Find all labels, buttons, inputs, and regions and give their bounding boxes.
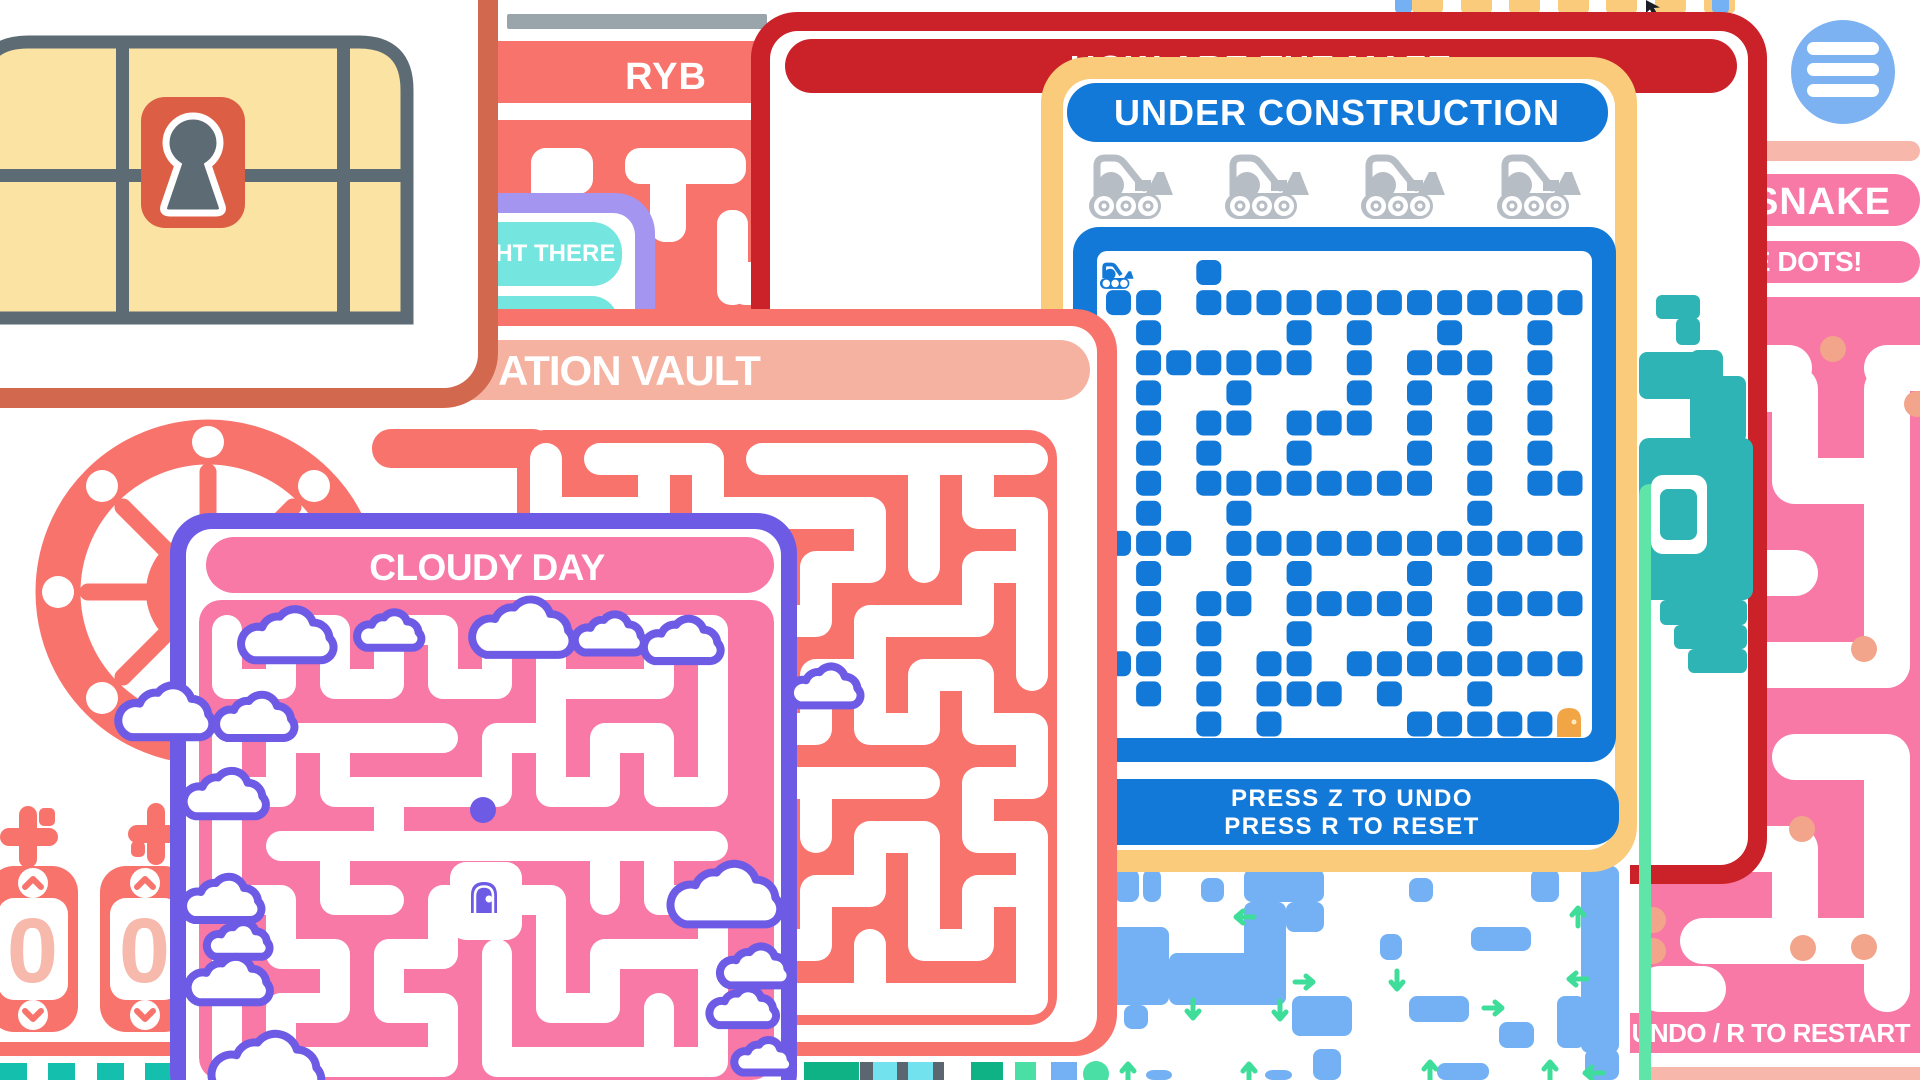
svg-text:ATION VAULT: ATION VAULT bbox=[498, 347, 761, 394]
svg-text:UNDO / R TO RESTART: UNDO / R TO RESTART bbox=[1632, 1018, 1911, 1048]
svg-text:SNAKE: SNAKE bbox=[1753, 181, 1891, 223]
svg-text:0: 0 bbox=[119, 900, 171, 1002]
svg-text:0: 0 bbox=[7, 900, 59, 1002]
svg-text:CLOUDY DAY: CLOUDY DAY bbox=[369, 547, 605, 588]
svg-text:UNDER CONSTRUCTION: UNDER CONSTRUCTION bbox=[1114, 92, 1560, 133]
svg-text:RYB: RYB bbox=[625, 56, 707, 98]
svg-text:PRESS R TO RESET: PRESS R TO RESET bbox=[1224, 813, 1480, 840]
svg-text:PRESS Z TO UNDO: PRESS Z TO UNDO bbox=[1231, 785, 1473, 812]
